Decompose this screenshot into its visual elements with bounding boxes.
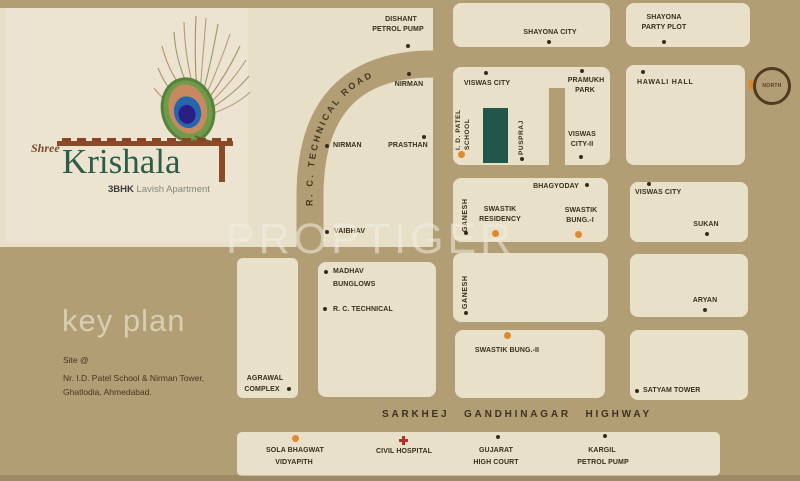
- kargil-label-1: KARGIL: [588, 446, 615, 455]
- hawali-label: HAWALI HALL: [637, 78, 694, 87]
- viswas-city2-marker: [579, 155, 583, 159]
- kargil-marker: [603, 434, 607, 438]
- logo-flute-vertical: [219, 144, 225, 182]
- pramukh-label-1: PRAMUKH: [568, 76, 604, 85]
- logo-tagline-rest: Lavish Apartment: [134, 184, 210, 195]
- viswas-city-marker: [484, 71, 488, 75]
- idpatel-school-label: I. D. PATEL SCHOOL: [454, 104, 472, 150]
- viswas-city-label: VISWAS CITY: [464, 79, 510, 88]
- swastik-bung2-label: SWASTIK BUNG.-II: [475, 346, 539, 355]
- logo-prefix: Shree: [31, 141, 60, 156]
- madhav-label-2: BUNGLOWS: [333, 280, 375, 289]
- north-compass-pointer: [749, 80, 753, 89]
- bhagyoday-label: BHAGYODAY: [533, 182, 579, 191]
- puspraj-marker: [520, 157, 524, 161]
- sukan-label: SUKAN: [693, 220, 718, 229]
- agrawal-label-2: COMPLEX: [244, 385, 279, 394]
- nirman-left-label: NIRMAN: [333, 141, 362, 150]
- agrawal-label-1: AGRAWAL: [247, 374, 283, 383]
- pramukh-label-2: PARK: [575, 86, 595, 95]
- logo-tagline-bold: 3BHK: [108, 184, 134, 195]
- vaibhav-marker: [325, 230, 329, 234]
- swastik-residency-label-1: SWASTIK: [484, 205, 517, 214]
- swastik-bung2-marker: [504, 332, 511, 339]
- logo-name: Krishala: [62, 144, 181, 179]
- sola-label-2: VIDYAPITH: [275, 458, 313, 467]
- dishant-marker: [406, 44, 410, 48]
- block-swastik-bung2: [455, 330, 605, 398]
- vaibhav-label: VAIBHAV: [334, 227, 365, 236]
- block-ganesh-south: [453, 253, 608, 322]
- ganesh-a-label: GANESH: [461, 194, 470, 232]
- ganesh-b-marker: [464, 311, 468, 315]
- rc-technical-marker: [323, 307, 327, 311]
- nirman-top-marker: [407, 72, 411, 76]
- north-compass-label: NORTH: [756, 70, 788, 102]
- viswas-city-r-marker: [647, 182, 651, 186]
- block-shayona-city: [453, 3, 610, 47]
- shayona-party-label-1: SHAYONA: [646, 13, 681, 22]
- sola-label-1: SOLA BHAGWAT: [266, 446, 324, 455]
- road-notch: [549, 88, 565, 165]
- shayona-city-marker: [547, 40, 551, 44]
- aryan-marker: [703, 308, 707, 312]
- shayona-party-marker: [662, 40, 666, 44]
- swastik-residency-marker: [492, 230, 499, 237]
- ganesh-a-marker: [464, 231, 468, 235]
- prasthan-label: PRASTHAN: [388, 141, 428, 150]
- shayona-party-label-2: PARTY PLOT: [642, 23, 687, 32]
- shayona-city-label: SHAYONA CITY: [523, 28, 576, 37]
- highway-label: SARKHEJ GANDHINAGAR HIGHWAY: [382, 408, 652, 421]
- satyam-marker: [635, 389, 639, 393]
- keyplan-title: key plan: [62, 303, 185, 339]
- hawali-marker: [641, 70, 645, 74]
- gujarat-label-1: GUJARAT: [479, 446, 513, 455]
- civil-hospital-cross-icon: [399, 436, 408, 445]
- viswas-city2-label-2: CITY-II: [571, 140, 593, 149]
- viswas-city2-label-1: VISWAS: [568, 130, 596, 139]
- swastik-bung1-label-1: SWASTIK: [565, 206, 598, 215]
- gujarat-label-2: HIGH COURT: [473, 458, 518, 467]
- viswas-city-r-label: VISWAS CITY: [635, 188, 681, 197]
- pramukh-marker: [580, 69, 584, 73]
- rc-technical-label: R. C. TECHNICAL: [333, 305, 393, 314]
- site-location-marker: [458, 151, 465, 158]
- swastik-bung1-label-2: BUNG.-I: [566, 216, 594, 225]
- site-note-line3: Ghatlodia, Ahmedabad.: [63, 387, 152, 397]
- nirman-top-label: NIRMAN: [395, 80, 424, 89]
- sola-marker: [292, 435, 299, 442]
- kargil-label-2: PETROL PUMP: [577, 458, 629, 467]
- site-note-line2: Nr. I.D. Patel School & Nirman Tower,: [63, 373, 204, 383]
- sukan-marker: [705, 232, 709, 236]
- swastik-residency-label-2: RESIDENCY: [479, 215, 521, 224]
- civil-hospital-label: CIVIL HOSPITAL: [376, 447, 432, 456]
- key-plan-map: R. C. TECHNICAL ROAD DISHANT PETROL PUMP…: [0, 0, 800, 481]
- agrawal-marker: [287, 387, 291, 391]
- satyam-label: SATYAM TOWER: [643, 386, 700, 395]
- aryan-label: ARYAN: [693, 296, 718, 305]
- ganesh-b-label: GANESH: [461, 271, 470, 309]
- bottom-edge-shade: [0, 475, 800, 481]
- block-aryan: [630, 254, 748, 317]
- gujarat-marker: [496, 435, 500, 439]
- puspraj-label: PUSPRAJ: [517, 119, 526, 155]
- madhav-marker: [324, 270, 328, 274]
- dishant-label-1: DISHANT: [385, 15, 417, 24]
- dishant-label-2: PETROL PUMP: [372, 25, 424, 34]
- logo-tagline: 3BHK Lavish Apartment: [108, 184, 210, 195]
- bhagyoday-marker: [585, 183, 589, 187]
- swastik-bung1-marker: [575, 231, 582, 238]
- prasthan-marker: [422, 135, 426, 139]
- site-note-line1: Site @: [63, 355, 89, 365]
- peacock-feather-icon: [140, 8, 255, 144]
- madhav-label-1: MADHAV: [333, 267, 364, 276]
- nirman-left-marker: [325, 144, 329, 148]
- north-compass: NORTH: [753, 67, 791, 105]
- site-marker: [483, 108, 508, 163]
